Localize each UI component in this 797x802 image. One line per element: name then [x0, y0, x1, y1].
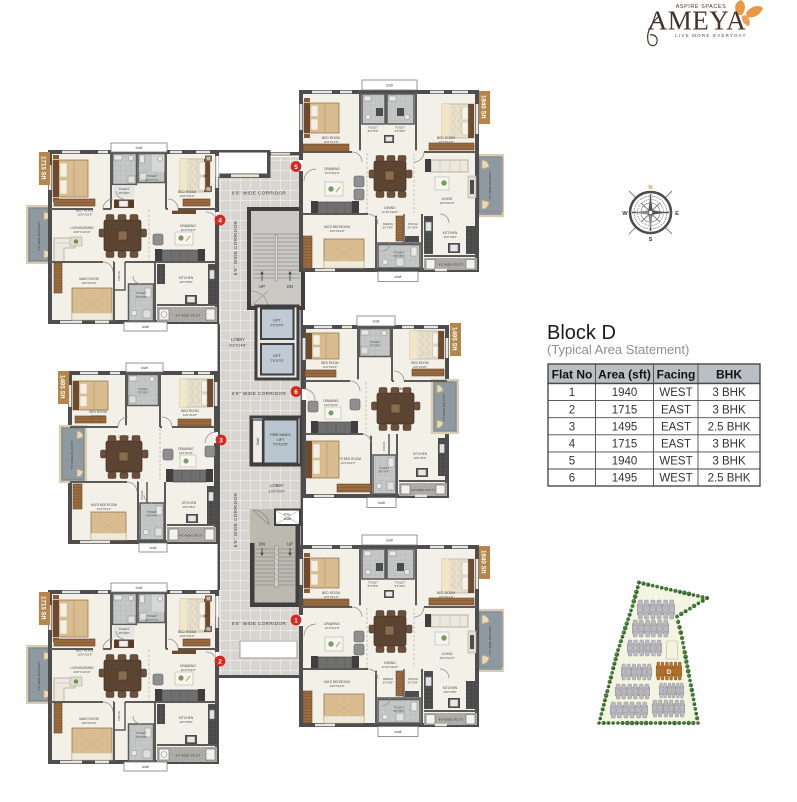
- svg-text:LOBBY: LOBBY: [231, 337, 245, 342]
- svg-text:DN: DN: [259, 542, 265, 547]
- svg-text:4: 4: [569, 439, 576, 451]
- svg-text:shaft: shaft: [386, 84, 393, 88]
- svg-text:1715: 1715: [612, 439, 638, 451]
- svg-text:N: N: [648, 185, 652, 191]
- svg-text:DRESS: DRESS: [383, 222, 393, 226]
- svg-text:EAST: EAST: [661, 421, 691, 433]
- svg-text:shaft: shaft: [284, 517, 291, 521]
- svg-text:11'0"X11'6": 11'0"X11'6": [324, 403, 338, 407]
- svg-text:D: D: [667, 670, 672, 676]
- svg-text:E: E: [675, 211, 679, 217]
- svg-text:12'0"X12'0": 12'0"X12'0": [323, 140, 338, 144]
- svg-text:1715: 1715: [612, 404, 638, 416]
- svg-text:1715 Sft: 1715 Sft: [40, 156, 47, 180]
- svg-text:4'0"X8'0": 4'0"X8'0": [135, 295, 146, 299]
- svg-text:10'0"X8'6": 10'0"X8'6": [182, 505, 195, 509]
- svg-text:3 BHK: 3 BHK: [712, 456, 746, 468]
- svg-text:TOILET: TOILET: [395, 126, 405, 130]
- svg-text:(Typical Area Statement): (Typical Area Statement): [547, 342, 689, 357]
- svg-text:3 BHK: 3 BHK: [712, 439, 746, 451]
- svg-text:Fire-: Fire-: [284, 513, 291, 517]
- svg-text:12'4"X12'0": 12'4"X12'0": [324, 171, 339, 175]
- svg-text:12'4"X12'4": 12'4"X12'4": [97, 507, 112, 511]
- svg-text:POOJA: POOJA: [408, 222, 418, 226]
- svg-text:12'0"X12'0": 12'0"X12'0": [438, 140, 453, 144]
- svg-text:10'4"X12'0": 10'4"X12'0": [439, 201, 454, 205]
- svg-text:7'0"X4'0": 7'0"X4'0": [370, 344, 381, 348]
- svg-text:UP: UP: [287, 542, 293, 547]
- svg-text:6'6" WIDE CORRIDOR: 6'6" WIDE CORRIDOR: [233, 493, 238, 548]
- svg-text:BHK: BHK: [716, 368, 742, 382]
- svg-text:Block D: Block D: [547, 322, 616, 344]
- svg-text:20'0"X10'10": 20'0"X10'10": [74, 230, 91, 234]
- svg-text:5: 5: [569, 456, 575, 468]
- svg-text:4: 4: [218, 217, 222, 224]
- svg-text:1940 Sft: 1940 Sft: [480, 95, 487, 119]
- svg-text:11'10"X10'0": 11'10"X10'0": [382, 210, 399, 214]
- svg-text:10'0"X8'6": 10'0"X8'6": [413, 456, 426, 460]
- svg-text:12'0"X11'0": 12'0"X11'0": [77, 213, 92, 217]
- svg-text:10'0"X9'0": 10'0"X9'0": [268, 490, 286, 494]
- svg-text:2.5 BHK: 2.5 BHK: [708, 421, 751, 433]
- svg-text:6'6" WIDE CORRIDOR: 6'6" WIDE CORRIDOR: [232, 621, 287, 626]
- svg-text:3: 3: [569, 421, 575, 433]
- svg-text:6: 6: [294, 389, 298, 396]
- svg-text:9'0"X5'0": 9'0"X5'0": [393, 254, 404, 258]
- svg-text:1: 1: [569, 387, 575, 399]
- svg-text:1495 Sft: 1495 Sft: [59, 375, 66, 399]
- svg-text:WEST: WEST: [659, 473, 692, 485]
- svg-text:5'4"X8'6": 5'4"X8'6": [395, 129, 406, 133]
- svg-text:4'4" WIDE UTILITY: 4'4" WIDE UTILITY: [411, 488, 435, 492]
- svg-text:5'0"X5'4": 5'0"X5'4": [408, 226, 419, 230]
- svg-text:3 BHK: 3 BHK: [712, 387, 746, 399]
- svg-text:shaft: shaft: [141, 366, 148, 370]
- svg-text:POOJA: POOJA: [382, 441, 386, 450]
- svg-text:4'4" WIDE UTILITY: 4'4" WIDE UTILITY: [179, 534, 203, 538]
- svg-text:7'0"X7'0": 7'0"X7'0": [270, 324, 284, 328]
- svg-text:shaft: shaft: [373, 320, 380, 324]
- svg-text:1495: 1495: [612, 473, 638, 485]
- svg-text:8'3"X14'8": 8'3"X14'8": [229, 344, 247, 348]
- svg-text:shaft: shaft: [142, 325, 149, 329]
- svg-text:5'0" WIDE BALCONY: 5'0" WIDE BALCONY: [37, 222, 41, 251]
- svg-text:7'0" WIDE BALCONY: 7'0" WIDE BALCONY: [442, 393, 446, 422]
- svg-text:12'0"X8'0": 12'0"X8'0": [179, 280, 193, 284]
- svg-text:11'2"X10'0": 11'2"X10'0": [91, 414, 106, 418]
- svg-text:11'0"X10'0": 11'0"X10'0": [323, 365, 338, 369]
- svg-text:TOILET: TOILET: [147, 510, 157, 514]
- svg-text:Facing: Facing: [657, 368, 696, 382]
- svg-text:Flat No: Flat No: [552, 368, 593, 382]
- svg-text:5: 5: [294, 164, 298, 171]
- svg-text:TOILET: TOILET: [368, 126, 378, 130]
- svg-text:Shaft: Shaft: [256, 438, 260, 446]
- svg-text:TOILET: TOILET: [138, 387, 148, 391]
- svg-text:UP: UP: [259, 284, 265, 289]
- svg-text:8'6"X4'6": 8'6"X4'6": [147, 514, 158, 518]
- svg-text:6: 6: [569, 473, 575, 485]
- svg-text:7'0"X4'0": 7'0"X4'0": [138, 391, 149, 395]
- svg-text:shaft: shaft: [150, 546, 157, 550]
- svg-text:shaft: shaft: [395, 275, 402, 279]
- svg-text:7'0"X10'0": 7'0"X10'0": [273, 443, 289, 447]
- svg-text:6'6" WIDE CORRIDOR: 6'6" WIDE CORRIDOR: [232, 391, 287, 396]
- svg-text:LIFT: LIFT: [273, 319, 281, 323]
- svg-text:WEST: WEST: [659, 387, 692, 399]
- svg-text:1940: 1940: [612, 387, 638, 399]
- svg-text:6'6" WIDE CORRIDOR: 6'6" WIDE CORRIDOR: [233, 221, 238, 276]
- svg-text:Area (sft): Area (sft): [598, 368, 651, 382]
- svg-text:2: 2: [218, 658, 222, 665]
- svg-text:1495: 1495: [612, 421, 638, 433]
- svg-text:6'6" WIDE CORRIDOR: 6'6" WIDE CORRIDOR: [232, 191, 287, 196]
- svg-text:1940 Sft: 1940 Sft: [480, 550, 487, 574]
- svg-text:TOILET: TOILET: [370, 340, 380, 344]
- svg-text:1940: 1940: [612, 456, 638, 468]
- svg-text:14'0"X12'0": 14'0"X12'0": [329, 229, 344, 233]
- svg-text:13'6"X8'6": 13'6"X8'6": [443, 235, 457, 239]
- svg-text:4'0" WIDE UTILITY: 4'0" WIDE UTILITY: [439, 263, 464, 267]
- svg-text:12'4"X11'0": 12'4"X11'0": [180, 228, 195, 232]
- svg-text:11'0"X11'6": 11'0"X11'6": [183, 413, 197, 417]
- svg-text:LIVE MORE EVERYDAY: LIVE MORE EVERYDAY: [675, 33, 746, 38]
- svg-text:5'0"X8'6": 5'0"X8'6": [383, 226, 394, 230]
- svg-text:10'0"X10'0": 10'0"X10'0": [81, 281, 96, 285]
- svg-text:FIRE MAN'S: FIRE MAN'S: [270, 433, 291, 437]
- svg-text:AMEYA: AMEYA: [648, 6, 747, 36]
- svg-text:12'4"X12'0": 12'4"X12'0": [341, 461, 356, 465]
- svg-text:10'0"X11'0": 10'0"X11'0": [179, 194, 194, 198]
- svg-text:5'0" WIDE BALCONY: 5'0" WIDE BALCONY: [70, 441, 74, 470]
- svg-text:2.5 BHK: 2.5 BHK: [708, 473, 751, 485]
- svg-text:8'2"X5'6": 8'2"X5'6": [368, 129, 379, 133]
- svg-text:3: 3: [219, 437, 223, 444]
- svg-text:S: S: [649, 237, 653, 243]
- svg-text:LIFT: LIFT: [277, 438, 285, 442]
- svg-text:1495 Sft: 1495 Sft: [451, 327, 458, 351]
- svg-text:6'6" WIDE BALCONY: 6'6" WIDE BALCONY: [488, 171, 492, 200]
- svg-text:4'0"X8'0": 4'0"X8'0": [118, 191, 129, 195]
- svg-text:7'0"X7'0": 7'0"X7'0": [270, 359, 284, 363]
- svg-text:1: 1: [294, 617, 298, 624]
- svg-text:8'6"X4'6": 8'6"X4'6": [379, 470, 390, 474]
- svg-text:11'0"X11'6": 11'0"X11'6": [179, 451, 193, 455]
- svg-text:DN: DN: [287, 284, 293, 289]
- svg-text:4'0" WIDE UTILITY: 4'0" WIDE UTILITY: [176, 314, 201, 318]
- svg-text:EAST: EAST: [661, 404, 691, 416]
- svg-text:POOJA: POOJA: [117, 271, 121, 281]
- svg-text:shaft: shaft: [136, 146, 143, 150]
- svg-text:3 BHK: 3 BHK: [712, 404, 746, 416]
- svg-text:LOBBY: LOBBY: [270, 483, 284, 488]
- svg-text:shaft: shaft: [378, 501, 385, 505]
- svg-text:LIFT: LIFT: [273, 354, 281, 358]
- svg-text:2: 2: [569, 404, 575, 416]
- svg-text:W: W: [622, 211, 628, 217]
- svg-text:POOJA: POOJA: [140, 490, 144, 499]
- svg-text:11'0"X11'6": 11'0"X11'6": [413, 365, 427, 369]
- svg-text:1715 Sft: 1715 Sft: [40, 596, 47, 620]
- svg-text:TOILET: TOILET: [379, 466, 389, 470]
- svg-text:WEST: WEST: [659, 456, 692, 468]
- svg-text:(8'0"X7'0"): (8'0"X7'0"): [145, 178, 158, 182]
- svg-text:EAST: EAST: [661, 439, 691, 451]
